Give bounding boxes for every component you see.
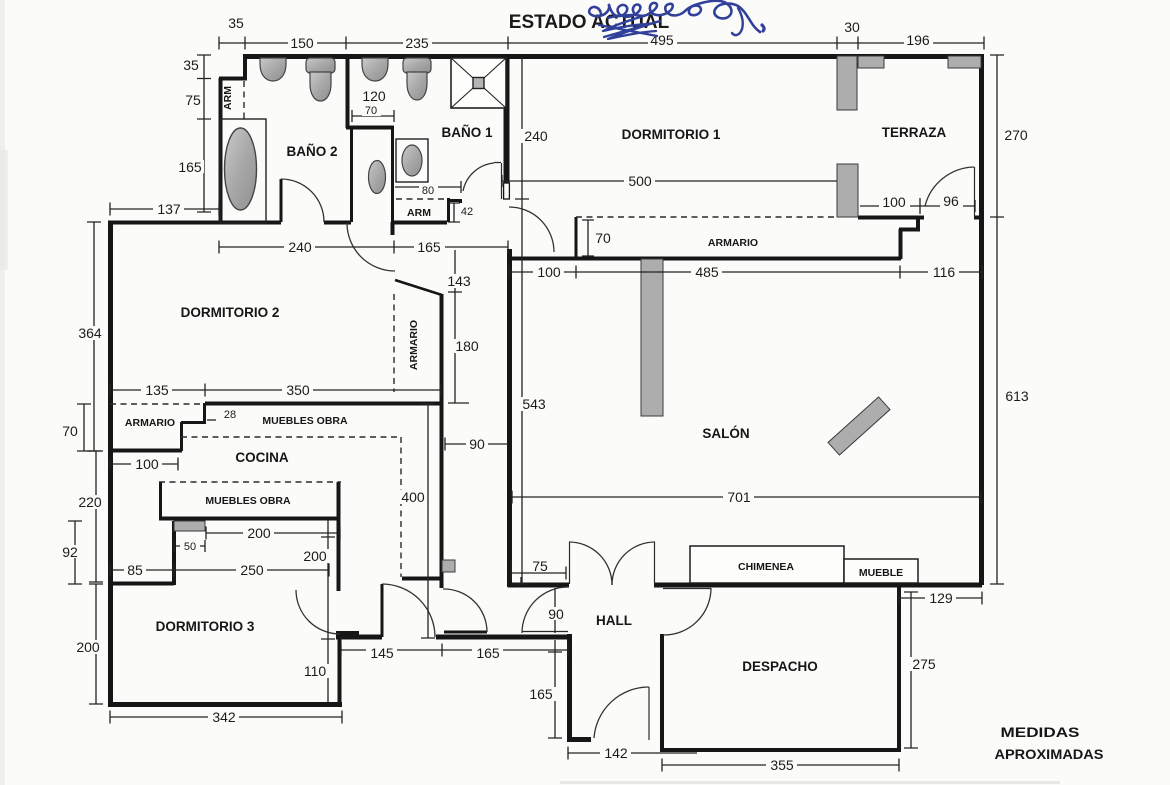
- svg-text:MUEBLES OBRA: MUEBLES OBRA: [205, 495, 291, 507]
- svg-text:APROXIMADAS: APROXIMADAS: [995, 747, 1104, 762]
- svg-text:MUEBLE: MUEBLE: [859, 567, 903, 579]
- svg-text:DORMITORIO 3: DORMITORIO 3: [156, 619, 255, 634]
- svg-text:ARMARIO: ARMARIO: [408, 320, 420, 370]
- svg-text:70: 70: [62, 423, 78, 439]
- svg-text:135: 135: [145, 382, 169, 398]
- svg-text:75: 75: [532, 558, 548, 574]
- svg-text:165: 165: [178, 159, 202, 175]
- svg-text:180: 180: [455, 338, 479, 354]
- svg-text:50: 50: [184, 541, 196, 553]
- svg-text:92: 92: [62, 544, 78, 560]
- svg-text:ARM: ARM: [407, 207, 431, 219]
- svg-text:90: 90: [548, 606, 564, 622]
- svg-text:129: 129: [929, 590, 953, 606]
- svg-text:100: 100: [882, 194, 906, 210]
- svg-text:DORMITORIO 1: DORMITORIO 1: [622, 127, 721, 142]
- svg-text:70: 70: [365, 105, 377, 117]
- svg-text:220: 220: [78, 494, 102, 510]
- svg-text:HALL: HALL: [596, 613, 632, 628]
- svg-text:240: 240: [524, 128, 548, 144]
- svg-text:80: 80: [422, 185, 434, 197]
- svg-text:196: 196: [906, 32, 930, 48]
- svg-text:355: 355: [770, 757, 794, 773]
- svg-text:ARMARIO: ARMARIO: [125, 417, 175, 429]
- svg-text:400: 400: [401, 489, 425, 505]
- svg-text:137: 137: [157, 201, 181, 217]
- svg-text:235: 235: [405, 35, 429, 51]
- svg-text:145: 145: [370, 645, 394, 661]
- svg-text:350: 350: [286, 382, 310, 398]
- svg-text:ARM: ARM: [222, 86, 234, 110]
- svg-text:500: 500: [628, 173, 652, 189]
- svg-text:143: 143: [447, 273, 471, 289]
- svg-text:100: 100: [537, 264, 561, 280]
- svg-text:MEDIDAS: MEDIDAS: [1001, 725, 1080, 740]
- svg-text:120: 120: [362, 88, 386, 104]
- svg-text:485: 485: [695, 264, 719, 280]
- svg-text:240: 240: [288, 239, 312, 255]
- svg-text:85: 85: [127, 562, 143, 578]
- svg-text:100: 100: [135, 456, 159, 472]
- svg-text:200: 200: [76, 639, 100, 655]
- svg-text:270: 270: [1004, 127, 1028, 143]
- svg-text:116: 116: [933, 264, 956, 280]
- svg-text:364: 364: [78, 325, 102, 341]
- svg-text:342: 342: [212, 709, 236, 725]
- svg-text:165: 165: [529, 686, 553, 702]
- svg-text:42: 42: [461, 206, 473, 218]
- svg-text:35: 35: [183, 57, 199, 73]
- svg-text:DESPACHO: DESPACHO: [742, 659, 818, 674]
- svg-text:COCINA: COCINA: [235, 450, 288, 465]
- svg-text:BAÑO 2: BAÑO 2: [286, 144, 337, 159]
- svg-text:30: 30: [844, 19, 860, 35]
- svg-text:150: 150: [290, 35, 314, 51]
- svg-text:CHIMENEA: CHIMENEA: [738, 561, 794, 573]
- svg-text:200: 200: [303, 548, 327, 564]
- svg-text:ARMARIO: ARMARIO: [708, 237, 758, 249]
- svg-text:275: 275: [912, 656, 936, 672]
- svg-text:TERRAZA: TERRAZA: [882, 125, 947, 140]
- svg-text:110: 110: [304, 663, 327, 679]
- svg-text:96: 96: [943, 193, 959, 209]
- svg-text:BAÑO 1: BAÑO 1: [441, 125, 492, 140]
- svg-text:SALÓN: SALÓN: [702, 426, 749, 441]
- svg-text:DORMITORIO 2: DORMITORIO 2: [181, 305, 280, 320]
- svg-text:MUEBLES OBRA: MUEBLES OBRA: [262, 415, 348, 427]
- svg-text:165: 165: [417, 239, 441, 255]
- svg-text:701: 701: [727, 489, 751, 505]
- svg-text:165: 165: [476, 645, 500, 661]
- svg-text:28: 28: [224, 409, 236, 421]
- svg-text:75: 75: [185, 92, 201, 108]
- svg-text:613: 613: [1005, 388, 1029, 404]
- svg-text:142: 142: [604, 745, 628, 761]
- svg-text:90: 90: [469, 436, 485, 452]
- svg-text:70: 70: [595, 230, 611, 246]
- svg-text:250: 250: [240, 562, 264, 578]
- svg-text:200: 200: [247, 525, 271, 541]
- svg-text:35: 35: [228, 15, 244, 31]
- svg-text:543: 543: [522, 396, 546, 412]
